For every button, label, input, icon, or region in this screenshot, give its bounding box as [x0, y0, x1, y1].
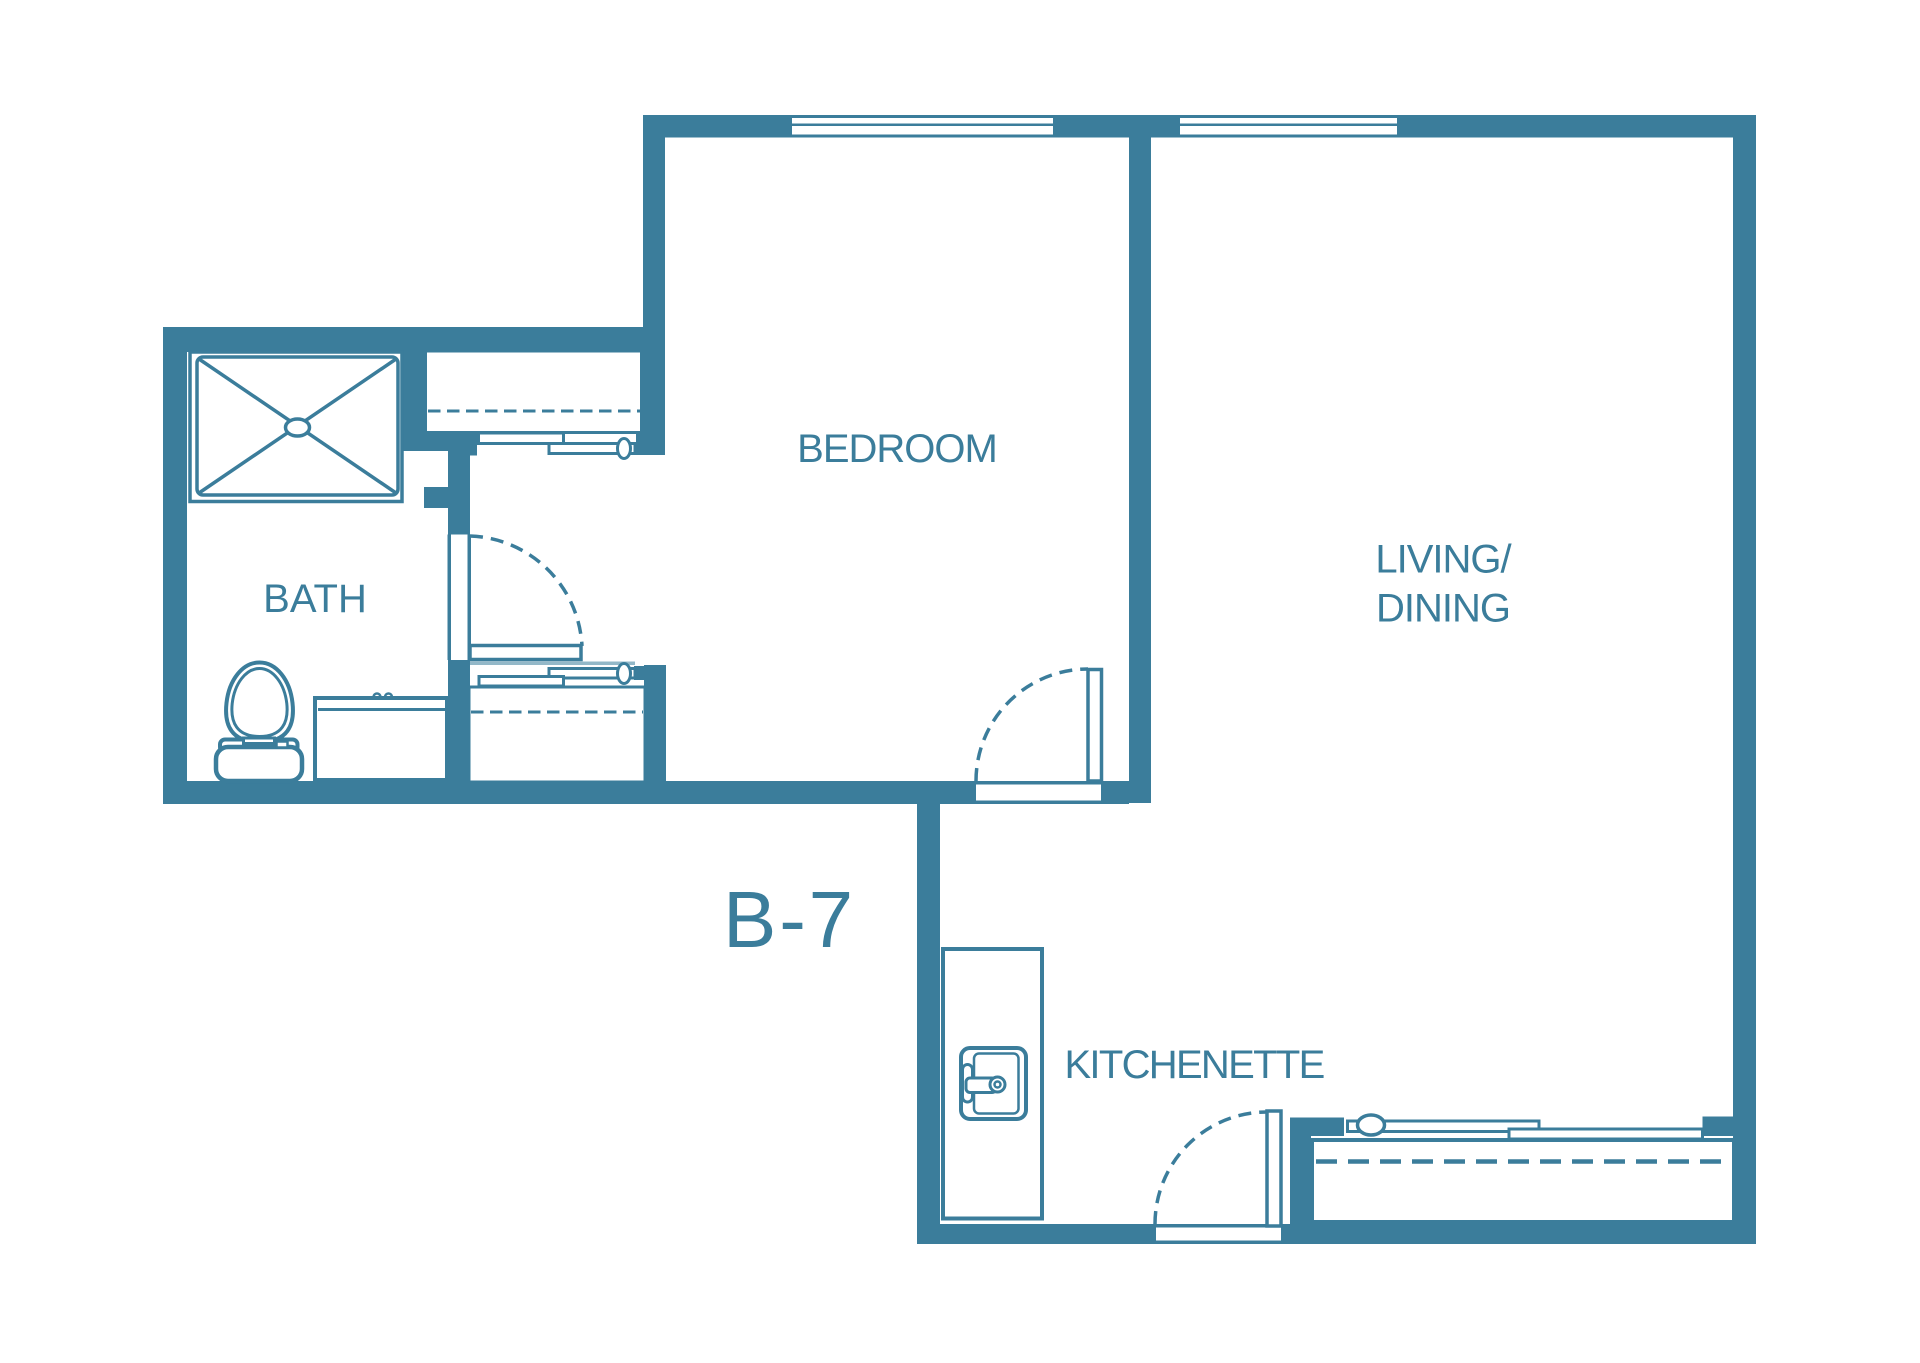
svg-text:DINING: DINING [1376, 587, 1510, 631]
svg-text:BEDROOM: BEDROOM [797, 427, 997, 471]
svg-text:LIVING/: LIVING/ [1375, 538, 1512, 582]
svg-text:KITCHENETTE: KITCHENETTE [1064, 1043, 1323, 1087]
svg-text:B-7: B-7 [723, 875, 856, 964]
svg-text:BATH: BATH [263, 577, 367, 621]
